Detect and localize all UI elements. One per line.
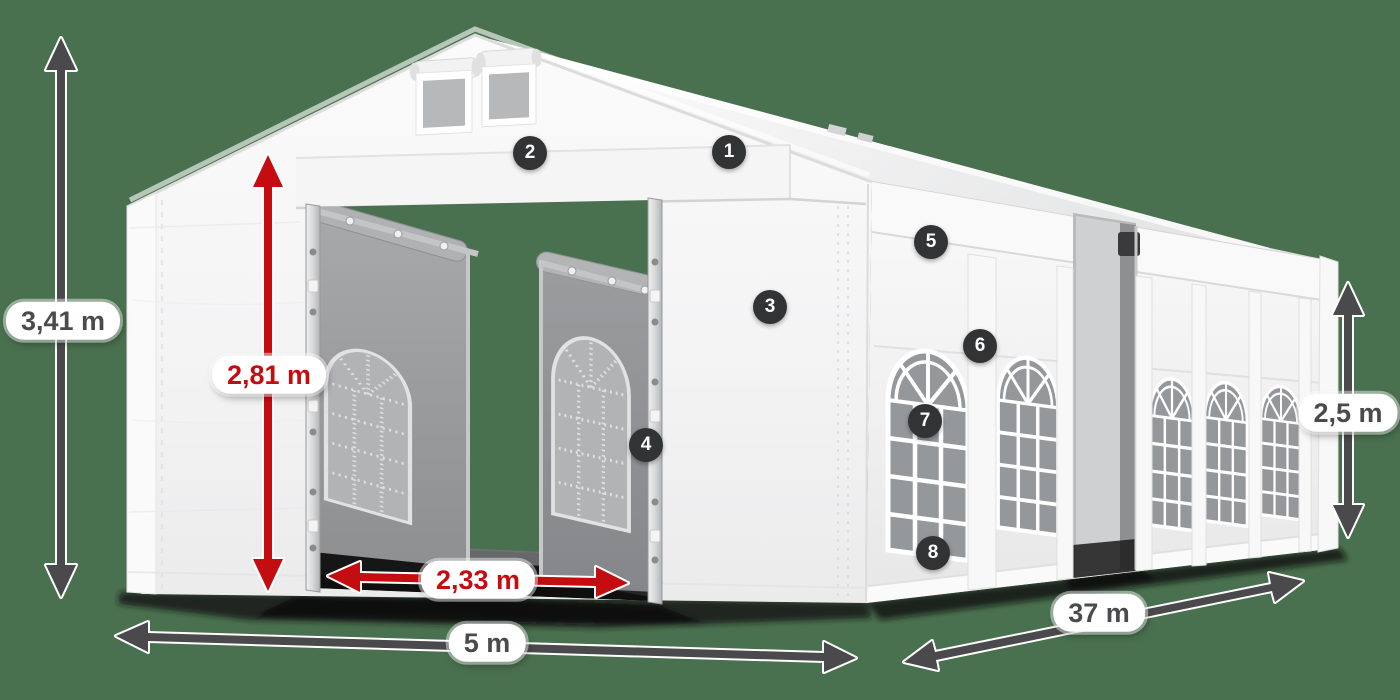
entrance-door-left bbox=[305, 198, 470, 568]
marker-6: 6 bbox=[963, 329, 997, 363]
gable-vent-right bbox=[475, 47, 542, 126]
marker-7: 7 bbox=[908, 404, 942, 438]
side-window-1 bbox=[888, 346, 968, 561]
side-window-3 bbox=[1150, 376, 1194, 531]
front-left-corner-strap bbox=[127, 193, 156, 594]
side-window-4 bbox=[1205, 380, 1247, 526]
marker-8: 8 bbox=[916, 536, 950, 570]
side-height-label: 2,5 m bbox=[1298, 394, 1397, 432]
marker-2: 2 bbox=[513, 136, 547, 170]
side-doorway bbox=[1073, 213, 1140, 578]
marker-3: 3 bbox=[753, 290, 787, 324]
marker-4: 4 bbox=[629, 428, 663, 462]
total-height-label: 3,41 m bbox=[6, 302, 120, 340]
length-label: 37 m bbox=[1053, 594, 1145, 632]
entrance-door-right bbox=[535, 250, 656, 598]
marker-1: 1 bbox=[712, 135, 746, 169]
side-window-2 bbox=[998, 354, 1058, 535]
marker-5: 5 bbox=[914, 225, 948, 259]
entrance-interior bbox=[300, 190, 670, 610]
entrance-height-label: 2,81 m bbox=[212, 356, 326, 394]
side-window-5 bbox=[1261, 384, 1301, 520]
gable-vent-left bbox=[409, 57, 482, 135]
entrance-width-label: 2,33 m bbox=[421, 561, 535, 599]
gable-width-label: 5 m bbox=[449, 624, 526, 662]
tent-dimension-diagram: 3,41 m 2,81 m 2,33 m 5 m 37 m 2,5 m 1 2 … bbox=[0, 0, 1400, 700]
tent-illustration bbox=[0, 0, 1400, 700]
